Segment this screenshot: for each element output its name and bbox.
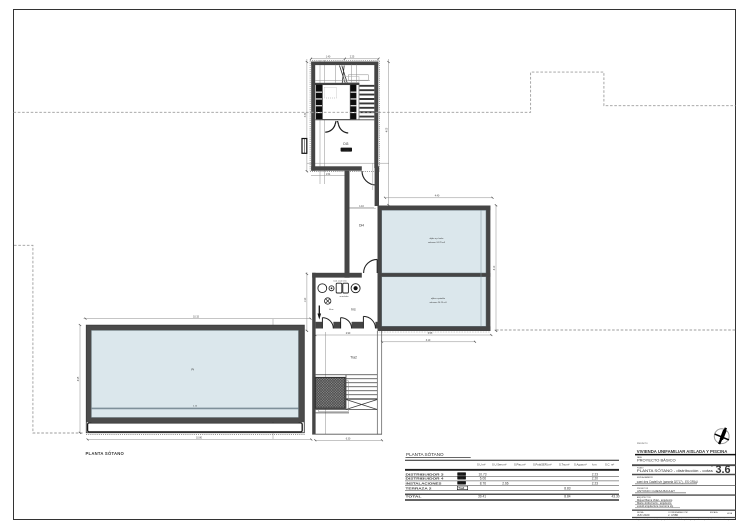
svg-text:INSTALACIONES: INSTALACIONES	[406, 482, 442, 486]
svg-text:4.10: 4.10	[494, 265, 496, 270]
svg-text:aljibe a.p./solar: aljibe a.p./solar	[430, 237, 444, 240]
svg-text:S.Pob(SER).m²: S.Pob(SER).m²	[533, 462, 552, 466]
svg-text:la presente documentación es p: la presente documentación es propiedad i…	[637, 518, 733, 521]
svg-text:3.10: 3.10	[426, 340, 431, 342]
svg-text:2.25: 2.25	[350, 57, 355, 59]
svg-text:8.84: 8.84	[564, 495, 570, 499]
svg-text:43.30: 43.30	[612, 495, 620, 499]
svg-text:S.Agua.m²: S.Agua.m²	[574, 462, 587, 466]
svg-text:volumen 24.78 m3: volumen 24.78 m3	[428, 242, 446, 244]
svg-text:6.30: 6.30	[346, 439, 351, 441]
svg-text:3.55: 3.55	[428, 333, 433, 335]
svg-text:S.U.Serv.m²: S.U.Serv.m²	[492, 462, 507, 466]
svg-text:2.23: 2.23	[592, 482, 598, 486]
svg-text:aljibe a.potable: aljibe a.potable	[431, 297, 446, 300]
svg-text:3.30: 3.30	[305, 112, 307, 117]
svg-text:ANTONIO CHIESA BAULET: ANTONIO CHIESA BAULET	[637, 489, 675, 493]
svg-text:4.05: 4.05	[387, 127, 389, 132]
svg-text:PROYECTO BÁSICO: PROYECTO BÁSICO	[637, 458, 676, 463]
svg-text:1.90: 1.90	[305, 297, 307, 302]
svg-text:PLANTA SÓTANO: PLANTA SÓTANO	[406, 451, 444, 457]
svg-text:2.90: 2.90	[346, 333, 351, 335]
svg-text:-2.80: -2.80	[344, 150, 350, 152]
svg-text:4.95: 4.95	[78, 376, 80, 381]
svg-text:1.40: 1.40	[326, 57, 331, 59]
svg-text:10.15: 10.15	[193, 316, 199, 318]
svg-text:ESCALA: ESCALA	[710, 511, 718, 514]
svg-text:6.06: 6.06	[480, 477, 486, 481]
svg-text:4.40: 4.40	[435, 196, 440, 198]
svg-text:Ins: Ins	[351, 308, 356, 312]
svg-text:S.Tra.m²: S.Tra.m²	[559, 462, 569, 466]
svg-text:S.C. m²: S.C. m²	[605, 462, 614, 466]
svg-text:PLANTA SÓTANO - distribución -: PLANTA SÓTANO - distribución - cotas	[637, 468, 713, 473]
svg-text:PROYECTO: PROYECTO	[637, 443, 648, 445]
svg-text:60cm: 60cm	[329, 309, 334, 311]
svg-text:volumen 24.25 m3: volumen 24.25 m3	[429, 302, 447, 304]
svg-text:camí des Castell s/n (parcela: camí des Castell s/n (parcela 02717) - E…	[637, 480, 699, 484]
svg-text:1.10: 1.10	[359, 206, 364, 208]
svg-text:Di3: Di3	[343, 142, 348, 146]
svg-text:x: 4.586: x: 4.586	[668, 513, 678, 517]
svg-text:HOJA: HOJA	[727, 512, 733, 515]
svg-text:TOTAL: TOTAL	[406, 495, 422, 499]
svg-text:estudi arquitectura menorca sl: estudi arquitectura menorca slp	[637, 504, 674, 508]
svg-text:2.20: 2.20	[592, 477, 598, 481]
svg-text:PLANTA SÓTANO: PLANTA SÓTANO	[86, 451, 125, 456]
svg-text:Pi: Pi	[191, 368, 194, 372]
svg-text:2.66: 2.66	[502, 482, 508, 486]
svg-text:TERRAZA 2: TERRAZA 2	[406, 486, 433, 490]
svg-text:10.80: 10.80	[196, 437, 202, 439]
svg-text:DISTRIBUIDOR 4: DISTRIBUIDOR 4	[406, 477, 445, 481]
svg-text:EMPLAZAMIENTO: EMPLAZAMIENTO	[637, 476, 654, 479]
svg-text:Tra2: Tra2	[350, 356, 357, 360]
svg-text:8.76: 8.76	[480, 482, 486, 486]
svg-text:39.41: 39.41	[478, 495, 486, 499]
svg-text:Tra2: Tra2	[458, 486, 464, 490]
svg-text:S.Pisc.m²: S.Pisc.m²	[514, 462, 526, 466]
svg-text:S.U.m²: S.U.m²	[477, 462, 485, 466]
svg-text:h.m: h.m	[592, 462, 597, 466]
svg-text:8.83: 8.83	[564, 486, 570, 490]
svg-text:JUN 2020: JUN 2020	[637, 513, 650, 517]
svg-text:Di4: Di4	[359, 224, 364, 228]
svg-text:acumulador: acumulador	[340, 295, 349, 298]
svg-text:1.54: 1.54	[326, 174, 331, 176]
